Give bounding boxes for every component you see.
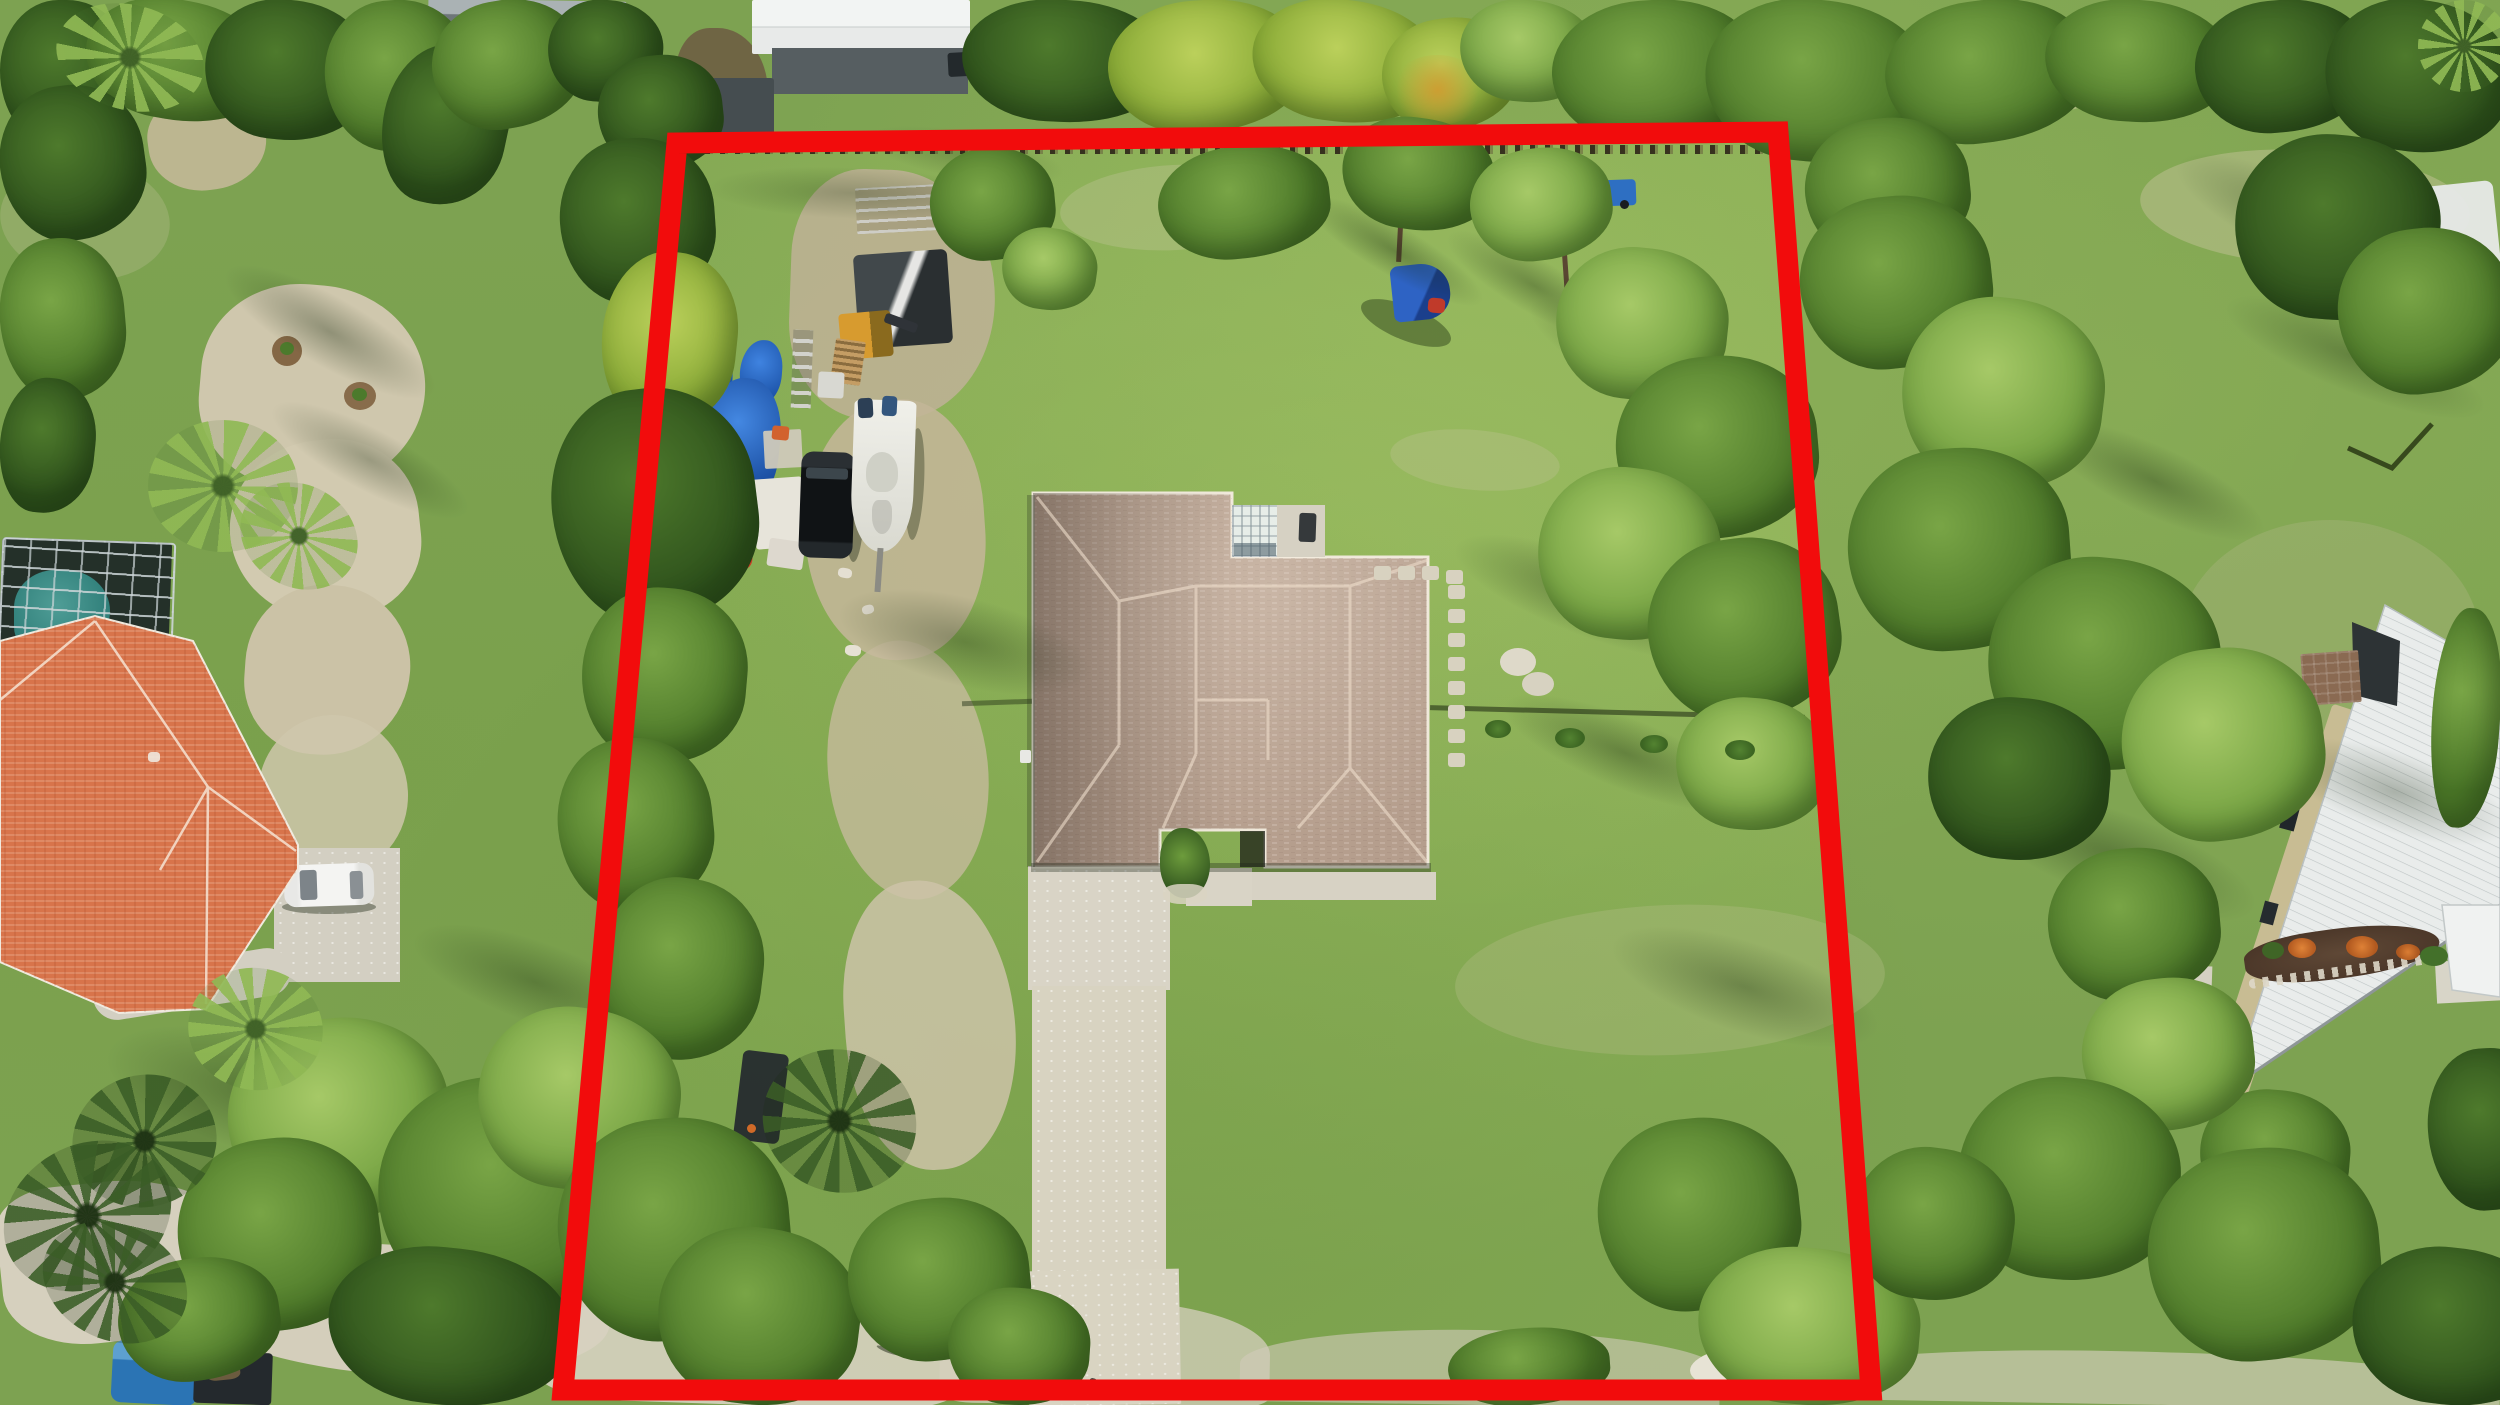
aerial-photo (0, 0, 2500, 1405)
property-boundary-outline (563, 132, 1871, 1390)
boundary-layer (0, 0, 2500, 1405)
